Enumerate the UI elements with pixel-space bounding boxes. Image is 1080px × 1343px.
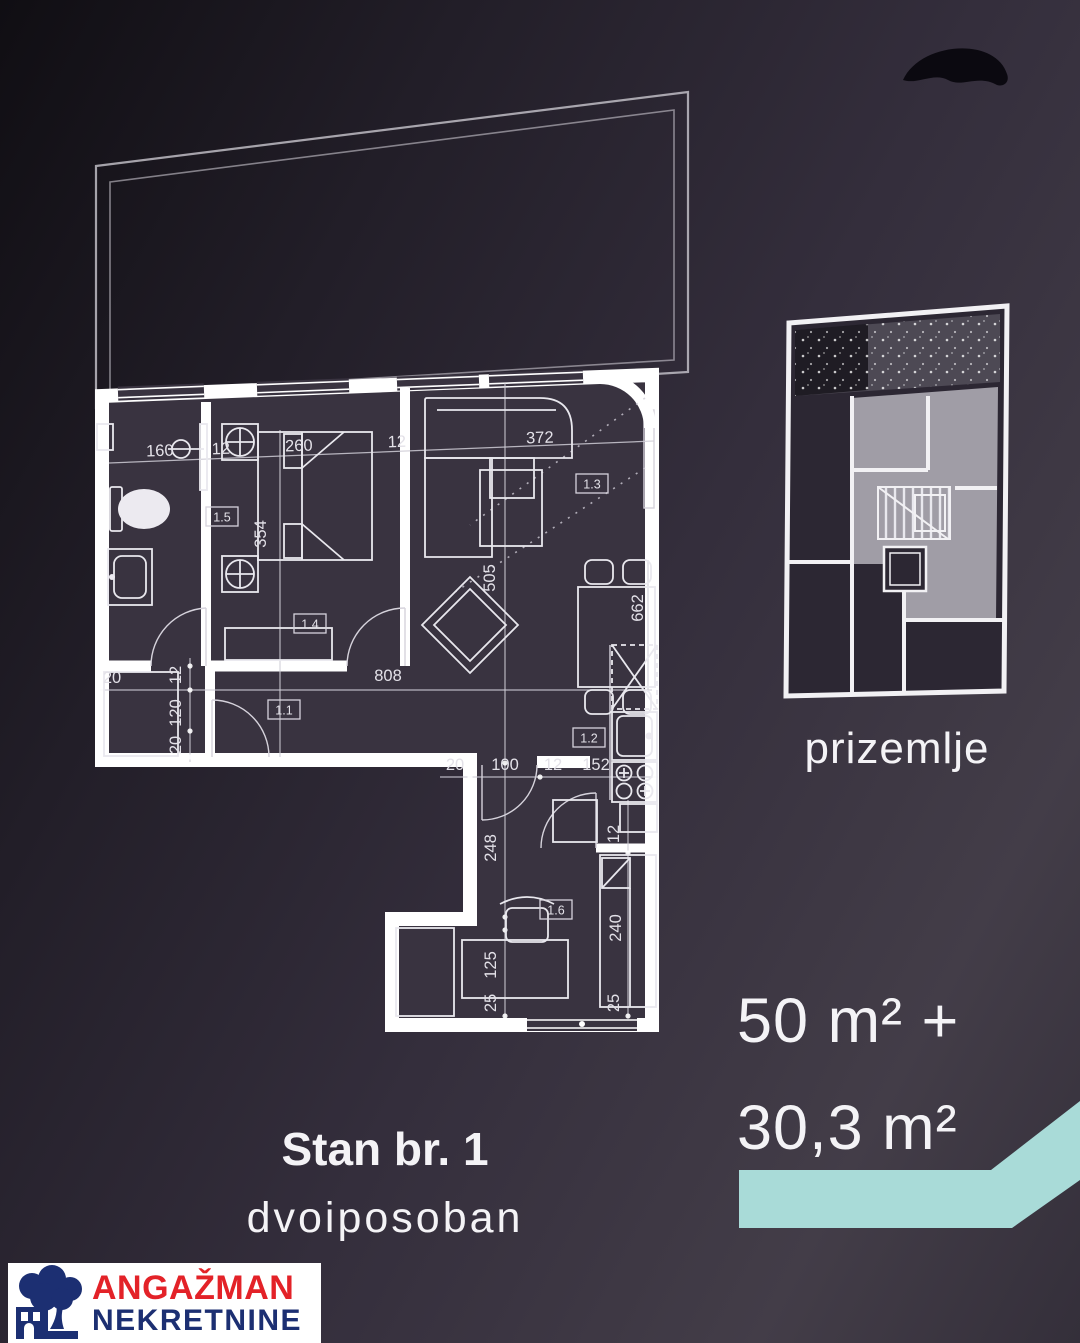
room-marker-label: 1.1 xyxy=(275,704,292,718)
room-marker-label: 1.2 xyxy=(580,732,597,746)
dimension-label: 12 xyxy=(211,440,230,459)
dimension-label: 260 xyxy=(285,437,313,456)
dimension-label: 505 xyxy=(481,564,499,592)
terrace-outline xyxy=(96,92,688,408)
bird-icon xyxy=(903,48,1008,85)
dimension-label: 25 xyxy=(605,994,623,1012)
dimension-label: 120 xyxy=(167,699,185,727)
floor-caption: prizemlje xyxy=(747,724,1047,774)
dimension-label: 100 xyxy=(491,756,519,774)
brand-logo: ANGAŽMAN NEKRETNINE xyxy=(8,1263,321,1343)
room-marker-label: 1.6 xyxy=(547,904,564,918)
tree-house-icon xyxy=(8,1265,90,1341)
dimension-label: 20 xyxy=(167,736,185,754)
dimension-label: 372 xyxy=(526,429,554,448)
dimension-label: 125 xyxy=(482,951,500,979)
mini-elevator-icon xyxy=(884,547,926,591)
dimension-label: 662 xyxy=(629,594,647,622)
apartment-plan: 1601226012372354505662808201212020201001… xyxy=(97,369,658,1031)
dimension-label: 808 xyxy=(374,667,402,685)
dimension-label: 354 xyxy=(252,520,270,548)
poster-canvas: 1601226012372354505662808201212020201001… xyxy=(0,0,1080,1343)
dimension-label: 248 xyxy=(482,834,500,862)
dimension-label: 12 xyxy=(605,825,623,843)
dimension-label: 240 xyxy=(607,914,625,942)
dimension-label: 20 xyxy=(103,669,121,687)
mini-stairs-icon xyxy=(878,487,950,539)
room-marker-label: 1.5 xyxy=(213,511,230,525)
area-text: 50 m² + 30,3 m² xyxy=(737,968,959,1182)
area-line-2: 30,3 m² xyxy=(737,1075,959,1182)
dimension-label: 12 xyxy=(544,756,562,774)
logo-line-1: ANGAŽMAN xyxy=(92,1271,302,1305)
unit-subtitle: dvoiposoban xyxy=(185,1194,585,1243)
mini-floorplan xyxy=(786,306,1007,696)
dimension-label: 20 xyxy=(446,756,464,774)
unit-title: Stan br. 1 xyxy=(185,1122,585,1176)
area-line-1: 50 m² + xyxy=(737,968,959,1075)
room-marker-label: 1.4 xyxy=(301,618,318,632)
room-marker-label: 1.3 xyxy=(583,478,600,492)
dimension-label: 152 xyxy=(582,756,610,774)
dimension-label: 12 xyxy=(387,433,406,452)
logo-line-2: NEKRETNINE xyxy=(92,1305,302,1336)
dimension-label: 160 xyxy=(146,442,174,461)
dimension-label: 25 xyxy=(482,994,500,1012)
dimension-label: 12 xyxy=(167,666,185,684)
